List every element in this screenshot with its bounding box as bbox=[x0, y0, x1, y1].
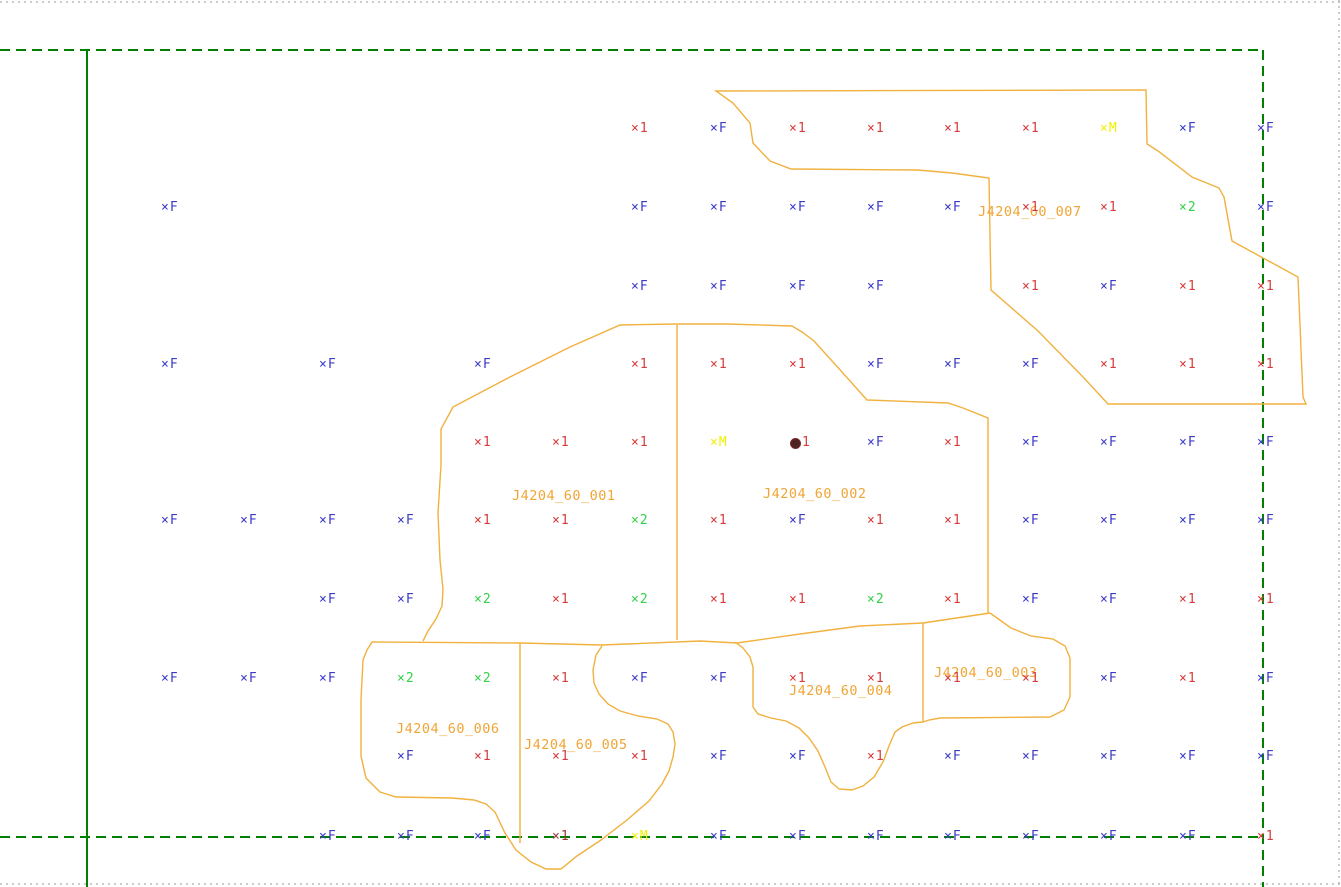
plot-marker-M[interactable]: ×M bbox=[1100, 122, 1118, 135]
plot-marker-F[interactable]: ×F bbox=[867, 436, 885, 449]
plot-marker-F[interactable]: ×F bbox=[944, 358, 962, 371]
plot-marker-F[interactable]: ×F bbox=[319, 514, 337, 527]
plot-marker-1[interactable]: ×1 bbox=[631, 436, 649, 449]
plot-marker-1[interactable]: ×1 bbox=[710, 514, 728, 527]
plot-marker-F[interactable]: ×F bbox=[631, 201, 649, 214]
plot-marker-F[interactable]: ×F bbox=[161, 358, 179, 371]
plot-marker-1[interactable]: ×1 bbox=[631, 358, 649, 371]
bottom-parcels-top-boundary[interactable] bbox=[372, 613, 990, 645]
plot-marker-1[interactable]: ×1 bbox=[867, 514, 885, 527]
plot-marker-1[interactable]: ×1 bbox=[789, 672, 807, 685]
plot-marker-F[interactable]: ×F bbox=[710, 672, 728, 685]
plot-marker-1[interactable]: ×1 bbox=[710, 358, 728, 371]
plot-marker-1[interactable]: ×1 bbox=[552, 750, 570, 763]
plot-marker-F[interactable]: ×F bbox=[319, 358, 337, 371]
plot-marker-F[interactable]: ×F bbox=[789, 830, 807, 843]
plot-marker-F[interactable]: ×F bbox=[240, 514, 258, 527]
plot-marker-1[interactable]: ×1 bbox=[1179, 672, 1197, 685]
plot-marker-1[interactable]: ×1 bbox=[1257, 358, 1275, 371]
plot-marker-1[interactable]: ×1 bbox=[552, 514, 570, 527]
plot-marker-1[interactable]: ×1 bbox=[1022, 122, 1040, 135]
plot-marker-F[interactable]: ×F bbox=[1022, 830, 1040, 843]
plot-marker-F[interactable]: ×F bbox=[631, 672, 649, 685]
plot-marker-F[interactable]: ×F bbox=[397, 593, 415, 606]
plot-marker-F[interactable]: ×F bbox=[710, 122, 728, 135]
plot-marker-F[interactable]: ×F bbox=[1100, 593, 1118, 606]
plot-marker-F[interactable]: ×F bbox=[789, 514, 807, 527]
plot-marker-1[interactable]: ×1 bbox=[1100, 358, 1118, 371]
parcel-001-002-outer[interactable] bbox=[423, 324, 988, 641]
plot-marker-F[interactable]: ×F bbox=[710, 750, 728, 763]
parcel-label-005: J4204_60_005 bbox=[524, 738, 628, 752]
plot-marker-F[interactable]: ×F bbox=[1022, 593, 1040, 606]
plot-marker-1[interactable]: ×1 bbox=[944, 593, 962, 606]
plot-marker-1[interactable]: ×1 bbox=[552, 830, 570, 843]
plot-marker-1[interactable]: ×1 bbox=[1179, 280, 1197, 293]
plot-marker-1[interactable]: ×1 bbox=[474, 514, 492, 527]
plot-marker-F[interactable]: ×F bbox=[1179, 122, 1197, 135]
plot-marker-F[interactable]: ×F bbox=[474, 830, 492, 843]
plot-marker-1[interactable]: ×1 bbox=[552, 436, 570, 449]
plot-marker-F[interactable]: ×F bbox=[1022, 358, 1040, 371]
plot-marker-F[interactable]: ×F bbox=[1100, 436, 1118, 449]
parcel-label-001: J4204_60_001 bbox=[512, 489, 616, 503]
plot-marker-F[interactable]: ×F bbox=[161, 672, 179, 685]
plot-marker-1[interactable]: ×1 bbox=[789, 122, 807, 135]
plot-marker-F[interactable]: ×F bbox=[867, 830, 885, 843]
parcel-004-outline[interactable] bbox=[735, 642, 923, 790]
plot-marker-F[interactable]: ×F bbox=[1179, 436, 1197, 449]
plot-marker-F[interactable]: ×F bbox=[397, 750, 415, 763]
plot-marker-2[interactable]: ×2 bbox=[867, 593, 885, 606]
plot-marker-F[interactable]: ×F bbox=[240, 672, 258, 685]
plot-marker-1[interactable]: ×1 bbox=[1257, 593, 1275, 606]
plot-marker-1[interactable]: ×1 bbox=[1179, 593, 1197, 606]
plot-marker-1[interactable]: ×1 bbox=[1179, 358, 1197, 371]
plot-marker-F[interactable]: ×F bbox=[867, 201, 885, 214]
map-viewport: J4204_60_001J4204_60_002J4204_60_003J420… bbox=[0, 0, 1341, 887]
plot-marker-F[interactable]: ×F bbox=[1179, 830, 1197, 843]
plot-marker-1[interactable]: ×1 bbox=[552, 593, 570, 606]
plot-marker-1[interactable]: ×1 bbox=[867, 750, 885, 763]
plot-marker-F[interactable]: ×F bbox=[710, 280, 728, 293]
plot-marker-1[interactable]: ×1 bbox=[1022, 280, 1040, 293]
plot-marker-2[interactable]: ×2 bbox=[1179, 201, 1197, 214]
plot-marker-2[interactable]: ×2 bbox=[397, 672, 415, 685]
plot-marker-1[interactable]: ×1 bbox=[944, 672, 962, 685]
plot-marker-F[interactable]: ×F bbox=[1179, 514, 1197, 527]
plot-marker-F[interactable]: ×F bbox=[944, 750, 962, 763]
plot-marker-1[interactable]: ×1 bbox=[474, 750, 492, 763]
plot-marker-2[interactable]: ×2 bbox=[631, 593, 649, 606]
plot-marker-F[interactable]: ×F bbox=[1257, 672, 1275, 685]
plot-marker-F[interactable]: ×F bbox=[1257, 122, 1275, 135]
plot-marker-1[interactable]: ×1 bbox=[1022, 672, 1040, 685]
map-canvas bbox=[0, 0, 1341, 887]
plot-marker-F[interactable]: ×F bbox=[789, 750, 807, 763]
plot-marker-2[interactable]: ×2 bbox=[631, 514, 649, 527]
plot-marker-1[interactable]: ×1 bbox=[944, 122, 962, 135]
plot-marker-F[interactable]: ×F bbox=[1179, 750, 1197, 763]
plot-marker-F[interactable]: ×F bbox=[944, 201, 962, 214]
plot-marker-F[interactable]: ×F bbox=[397, 514, 415, 527]
plot-marker-F[interactable]: ×F bbox=[710, 201, 728, 214]
plot-marker-dot[interactable] bbox=[790, 438, 801, 449]
plot-marker-F[interactable]: ×F bbox=[474, 358, 492, 371]
plot-marker-1[interactable]: ×1 bbox=[944, 436, 962, 449]
plot-marker-F[interactable]: ×F bbox=[710, 830, 728, 843]
plot-marker-2[interactable]: ×2 bbox=[474, 593, 492, 606]
plot-marker-F[interactable]: ×F bbox=[319, 830, 337, 843]
plot-marker-1[interactable]: ×1 bbox=[944, 514, 962, 527]
plot-marker-F[interactable]: ×F bbox=[1257, 514, 1275, 527]
plot-marker-1[interactable]: ×1 bbox=[789, 358, 807, 371]
plot-marker-F[interactable]: ×F bbox=[1100, 280, 1118, 293]
plot-marker-F[interactable]: ×F bbox=[944, 830, 962, 843]
plot-marker-F[interactable]: ×F bbox=[1022, 514, 1040, 527]
plot-marker-1[interactable]: ×1 bbox=[631, 122, 649, 135]
plot-marker-F[interactable]: ×F bbox=[1257, 436, 1275, 449]
plot-marker-F[interactable]: ×F bbox=[1022, 750, 1040, 763]
plot-marker-F[interactable]: ×F bbox=[789, 280, 807, 293]
parcel-label-006: J4204_60_006 bbox=[396, 722, 500, 736]
plot-marker-1[interactable]: ×1 bbox=[1022, 201, 1040, 214]
plot-marker-F[interactable]: ×F bbox=[1257, 750, 1275, 763]
plot-marker-1[interactable]: ×1 bbox=[1257, 830, 1275, 843]
plot-marker-F[interactable]: ×F bbox=[789, 201, 807, 214]
plot-marker-F[interactable]: ×F bbox=[631, 280, 649, 293]
plot-marker-F[interactable]: ×F bbox=[1100, 750, 1118, 763]
plot-marker-F[interactable]: ×F bbox=[161, 514, 179, 527]
plot-marker-1[interactable]: ×1 bbox=[867, 672, 885, 685]
plot-marker-F[interactable]: ×F bbox=[867, 280, 885, 293]
plot-marker-dot-label: 1 bbox=[802, 436, 811, 449]
plot-marker-1[interactable]: ×1 bbox=[1100, 201, 1118, 214]
plot-marker-F[interactable]: ×F bbox=[1100, 514, 1118, 527]
plot-marker-F[interactable]: ×F bbox=[1100, 672, 1118, 685]
plot-marker-F[interactable]: ×F bbox=[1100, 830, 1118, 843]
plot-marker-F[interactable]: ×F bbox=[397, 830, 415, 843]
plot-marker-M[interactable]: ×M bbox=[631, 830, 649, 843]
plot-marker-1[interactable]: ×1 bbox=[867, 122, 885, 135]
plot-marker-F[interactable]: ×F bbox=[319, 672, 337, 685]
plot-marker-M[interactable]: ×M bbox=[710, 436, 728, 449]
plot-marker-1[interactable]: ×1 bbox=[1257, 280, 1275, 293]
plot-marker-1[interactable]: ×1 bbox=[789, 593, 807, 606]
plot-marker-F[interactable]: ×F bbox=[1257, 201, 1275, 214]
plot-marker-1[interactable]: ×1 bbox=[710, 593, 728, 606]
plot-marker-F[interactable]: ×F bbox=[1022, 436, 1040, 449]
plot-marker-1[interactable]: ×1 bbox=[474, 436, 492, 449]
plot-marker-1[interactable]: ×1 bbox=[631, 750, 649, 763]
parcel-label-004: J4204_60_004 bbox=[789, 684, 893, 698]
plot-marker-2[interactable]: ×2 bbox=[474, 672, 492, 685]
plot-marker-1[interactable]: ×1 bbox=[552, 672, 570, 685]
plot-marker-F[interactable]: ×F bbox=[319, 593, 337, 606]
parcel-label-002: J4204_60_002 bbox=[763, 487, 867, 501]
plot-marker-F[interactable]: ×F bbox=[161, 201, 179, 214]
plot-marker-F[interactable]: ×F bbox=[867, 358, 885, 371]
